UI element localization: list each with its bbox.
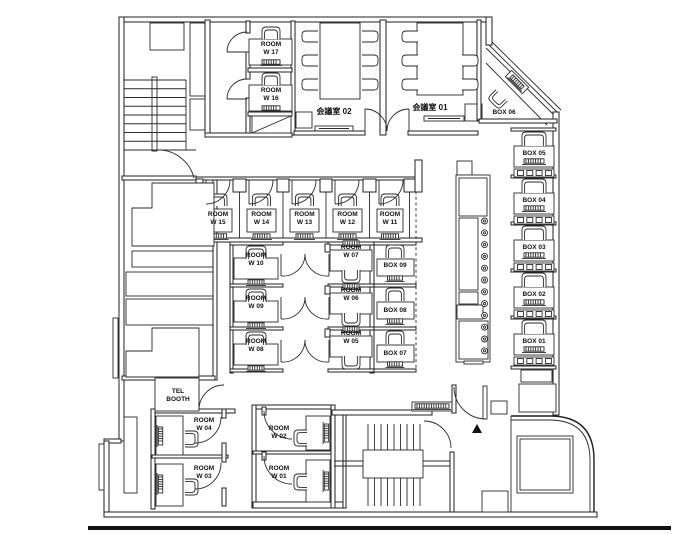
monitor-icon [386,276,405,282]
workstation-room-w10 [234,246,278,285]
chair-icon [294,474,307,490]
chair-icon [362,31,378,42]
workstation-room-w05 [330,327,372,369]
workstation-room-w03 [156,464,198,506]
chair-icon [522,273,546,287]
chair-icon [253,194,271,206]
desk [247,209,276,232]
monitor-icon [386,319,405,325]
desk [514,334,554,355]
workstation-room-w08 [234,332,278,371]
chair-icon [386,288,404,301]
monitor-icon [246,366,266,372]
desk [377,302,414,319]
workstation-room-w07 [330,241,372,283]
desk [377,345,414,362]
desk [377,209,403,232]
chair-icon [342,270,360,283]
chair-icon [402,79,418,90]
chair-icon [185,479,198,495]
monitor-icon [246,280,266,286]
monitor-icon [260,60,282,66]
chair-icon [302,79,318,90]
chair-icon [402,31,418,42]
workstation-room-w02 [294,416,330,450]
monitor-icon [341,241,361,247]
chair-icon [462,79,478,90]
monitor-icon [251,234,272,240]
monitor-icon [294,234,315,240]
monitor-icon [522,159,546,165]
desk [330,293,372,314]
monitor-icon [522,206,546,212]
chair-icon [522,226,546,240]
desk [234,344,278,365]
chair-icon [246,289,266,302]
chair-icon [246,332,266,345]
workstation-room-w17 [249,27,292,65]
chair-icon [302,31,318,42]
chair-icon [386,331,404,344]
desk [514,193,554,214]
chair-icon [381,194,399,206]
floor-plan: ROOM W 17ROOM W 16会議室 02会議室 01BOX 06BOX … [0,0,677,535]
chair-icon [294,430,307,446]
desk [290,209,319,232]
monitor-icon [413,404,451,410]
workstation-room-w11 [377,194,403,239]
chair-icon [342,313,360,326]
monitor-icon [323,470,329,492]
desk [234,301,278,322]
chair-icon [362,55,378,66]
monitor-icon [246,323,266,329]
monitor-icon [157,425,163,447]
chair-icon [296,194,314,206]
chair-icon [487,90,507,110]
desk [514,146,554,167]
box-seat-09 [377,245,414,281]
monitor-icon [323,422,329,444]
chair-icon [339,194,357,206]
entrance-triangle-icon [472,424,482,433]
floor-plan-drawing [0,0,677,535]
box-seat-04 [514,179,554,224]
monitor-icon [522,347,546,353]
desk [514,287,554,308]
monitor-icon [386,362,405,368]
workstation-room-w01 [294,460,330,502]
box-seat-07 [377,331,414,367]
desk [377,259,414,276]
monitor-icon [260,106,282,112]
desk [333,209,362,232]
desk [330,336,372,357]
chair-icon [362,79,378,90]
chair-icon [185,431,198,447]
chair-icon [522,320,546,334]
chair-icon [402,55,418,66]
monitor-icon [380,234,401,240]
box-seat-01 [514,320,554,365]
chair-icon [342,356,360,369]
chair-icon [522,132,546,146]
workstation-room-w16 [249,73,292,111]
box-seat-08 [377,288,414,324]
desk [330,250,372,271]
monitor-icon [341,284,361,290]
workstation-room-w09 [234,289,278,328]
box-seat-02 [514,273,554,318]
chair-icon [262,73,280,85]
monitor-icon [157,473,163,495]
chair-icon [262,27,280,39]
workstation-room-w06 [330,284,372,326]
chair-icon [522,179,546,193]
monitor-icon [341,327,361,333]
desk [514,240,554,261]
desk [234,258,278,279]
monitor-icon [522,300,546,306]
box-seat-05 [514,132,554,177]
chair-icon [462,55,478,66]
monitor-icon [337,234,358,240]
workstation-room-w04 [156,416,198,455]
chair-icon [302,55,318,66]
chair-icon [246,246,266,259]
box-seat-03 [514,226,554,271]
box-seat-06 [487,70,528,109]
monitor-icon [522,253,546,259]
chair-icon [386,245,404,258]
